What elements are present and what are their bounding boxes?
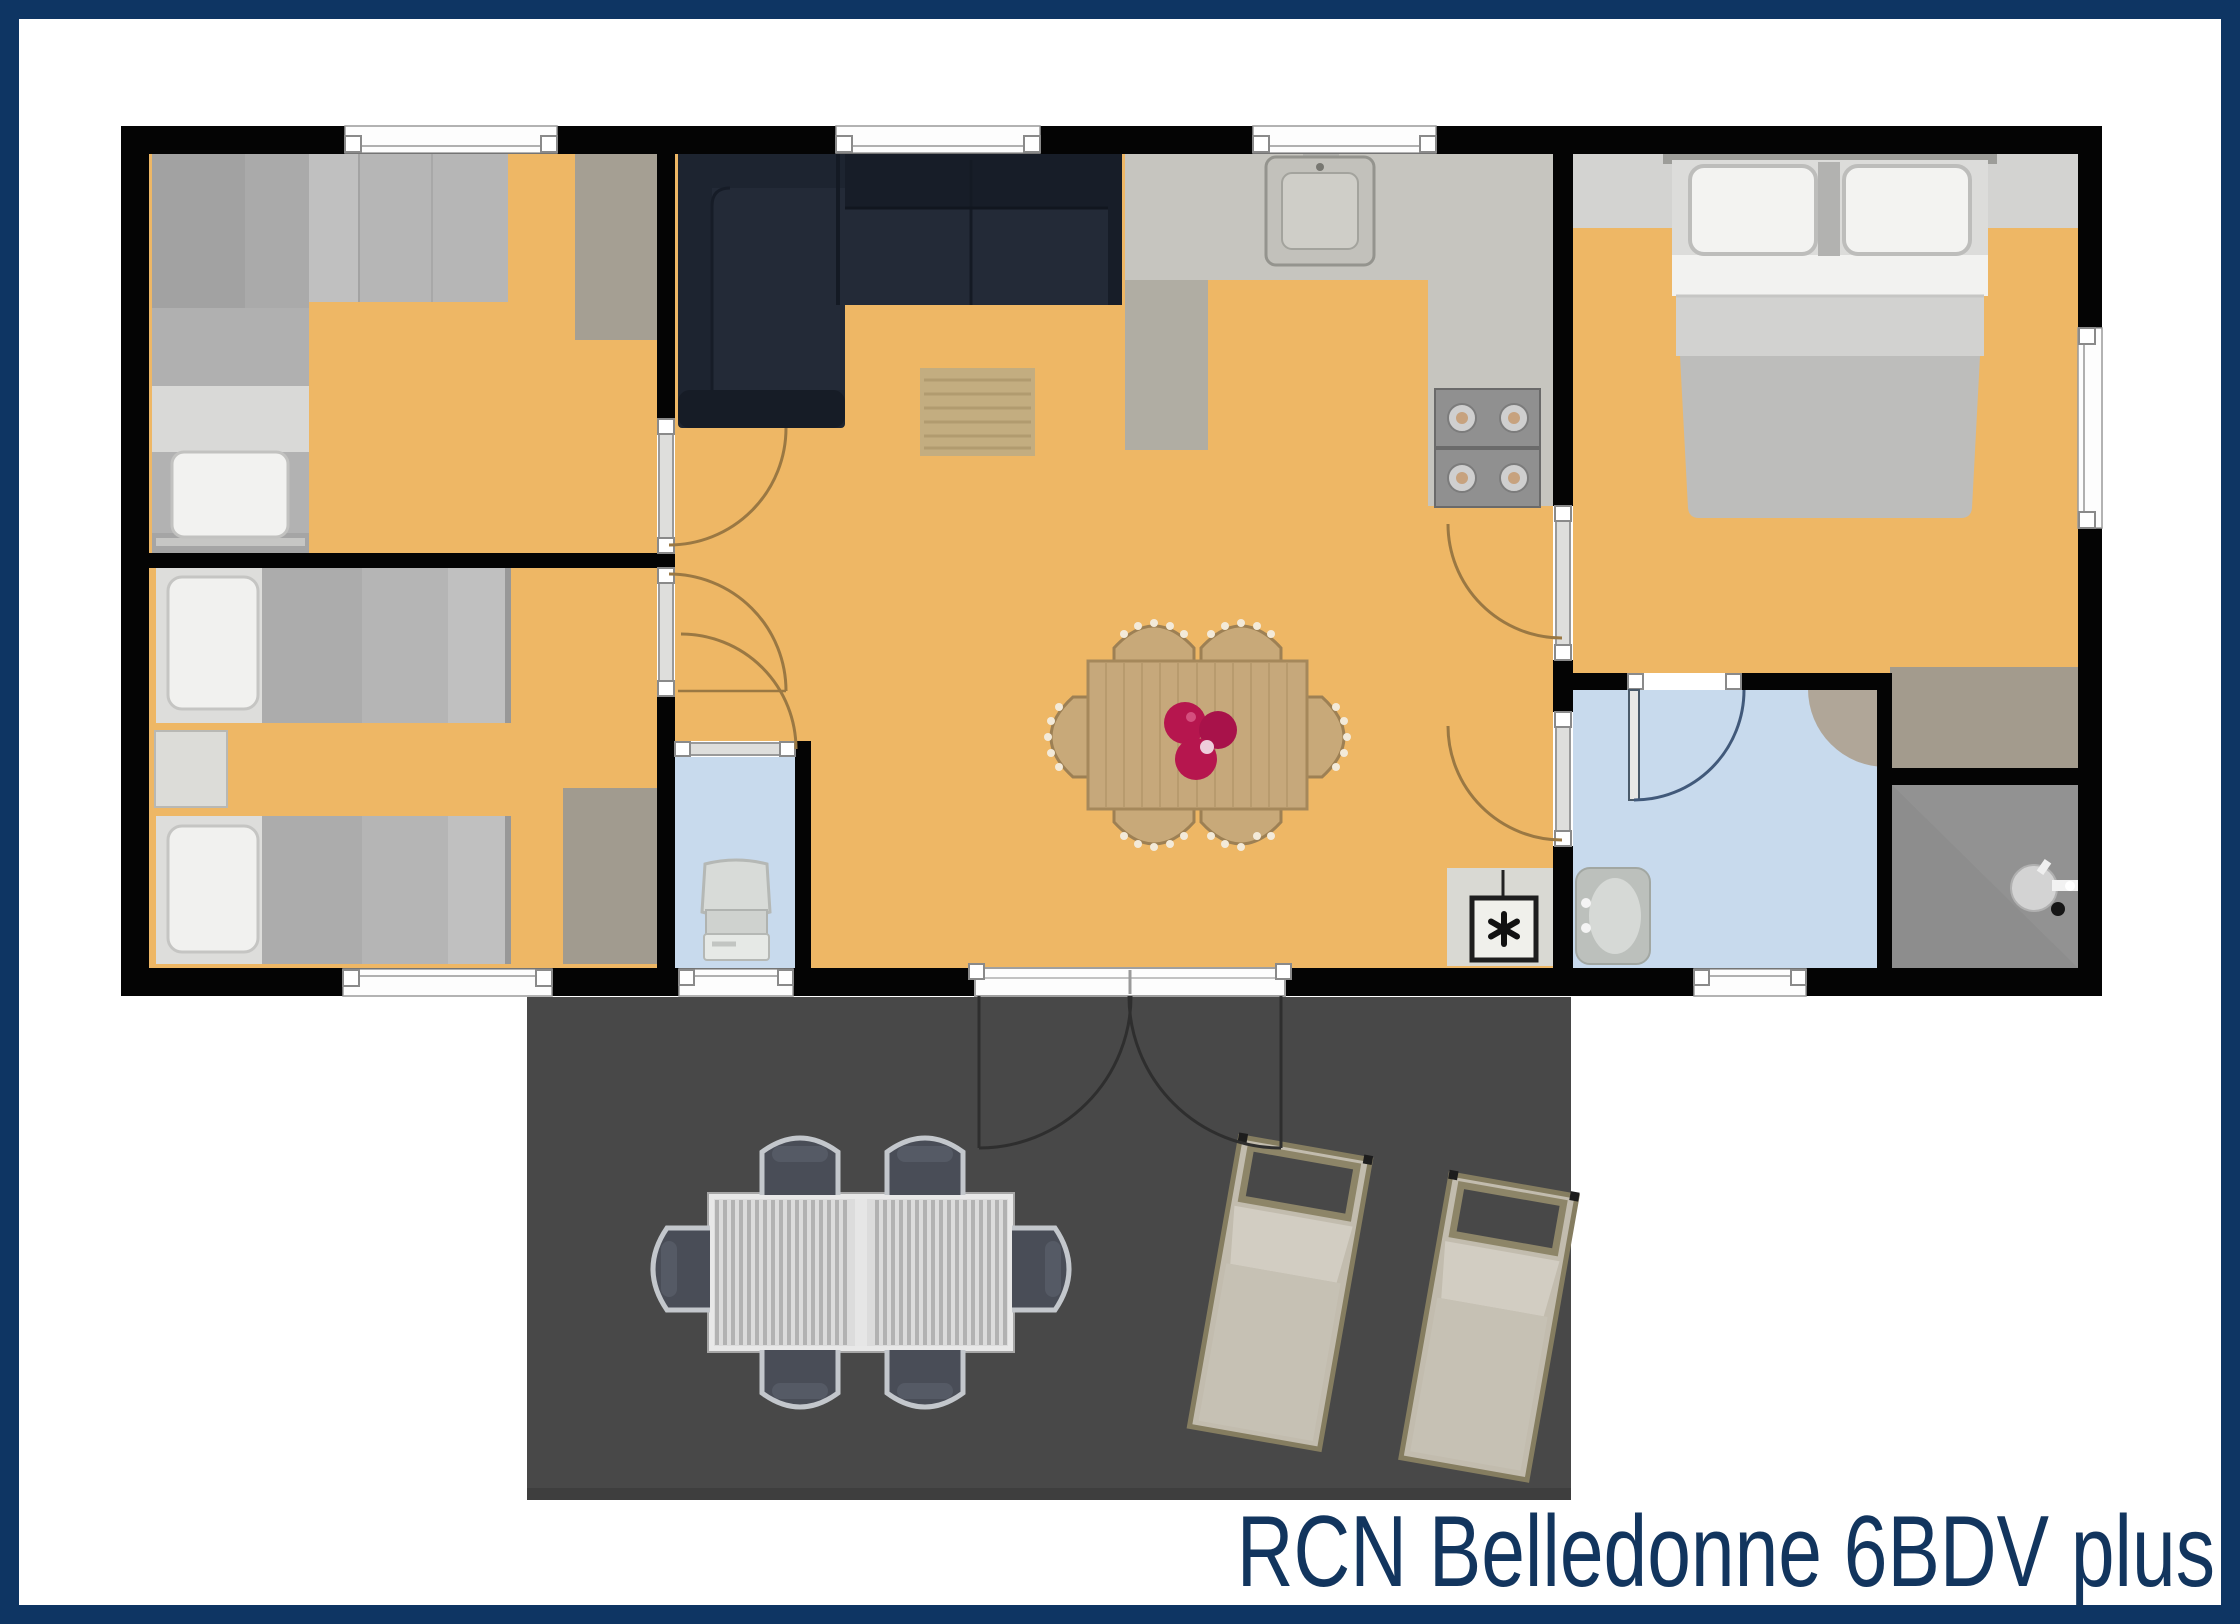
svg-text:RCN Belledonne 6BDV plus: RCN Belledonne 6BDV plus — [1237, 1496, 2215, 1609]
